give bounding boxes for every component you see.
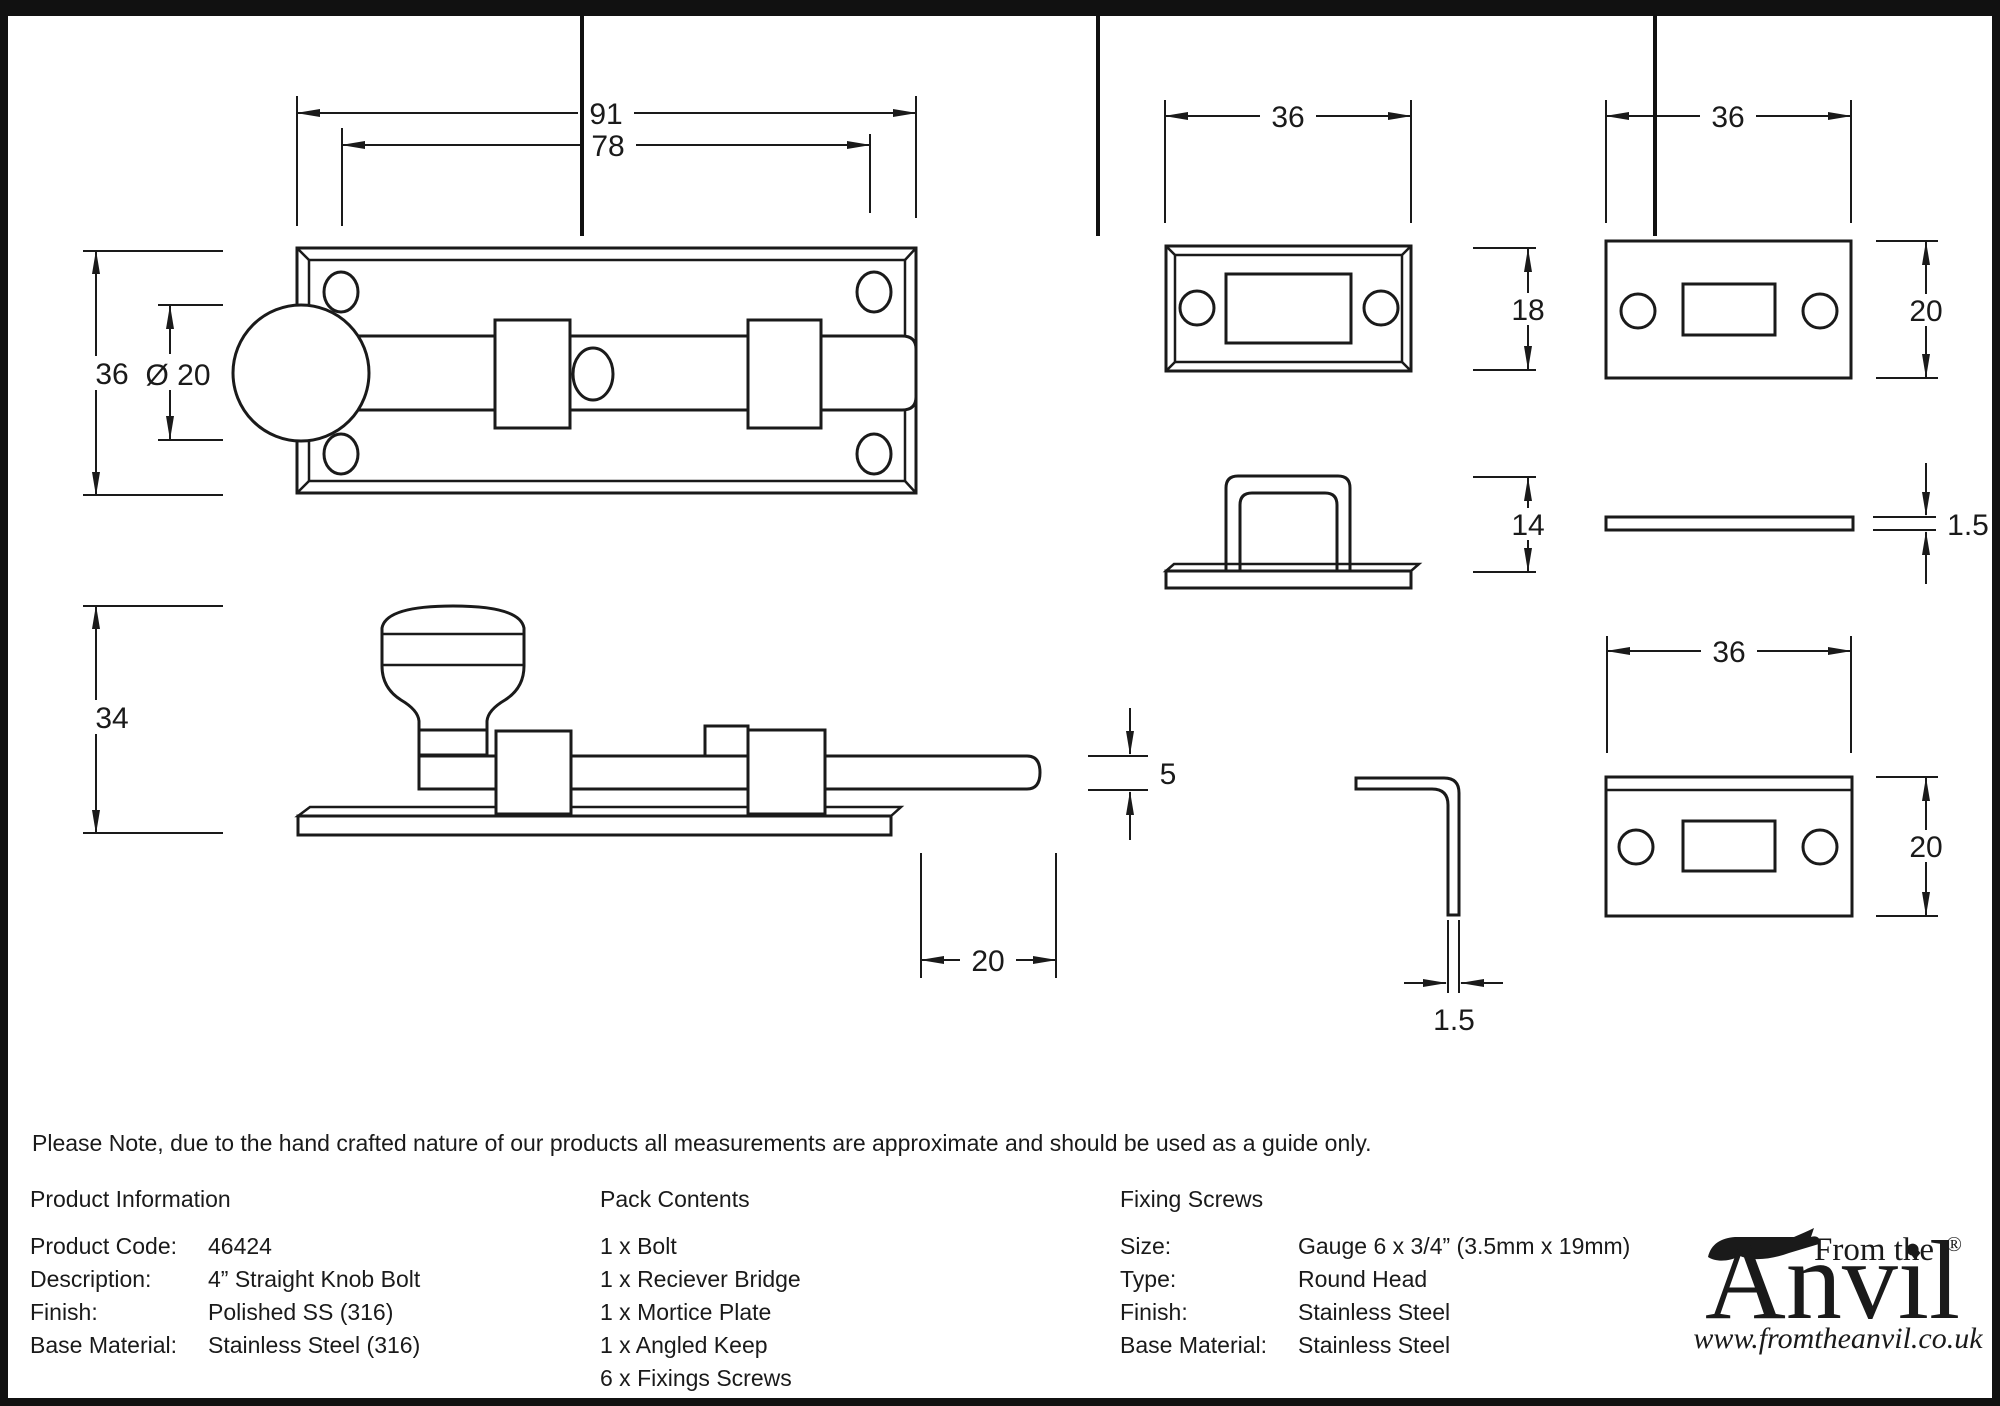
spec-sheet-page: 91 78 36 Ø 20 xyxy=(0,0,2000,1406)
diamond-icon: ♦ xyxy=(1909,1239,1921,1266)
brand-url: www.fromtheanvil.co.uk xyxy=(1693,1322,1983,1355)
brand-logo: Anvil From the ♦ ® www.fromtheanvil.co.u… xyxy=(8,8,2000,1406)
registered-mark: ® xyxy=(1946,1232,1962,1256)
